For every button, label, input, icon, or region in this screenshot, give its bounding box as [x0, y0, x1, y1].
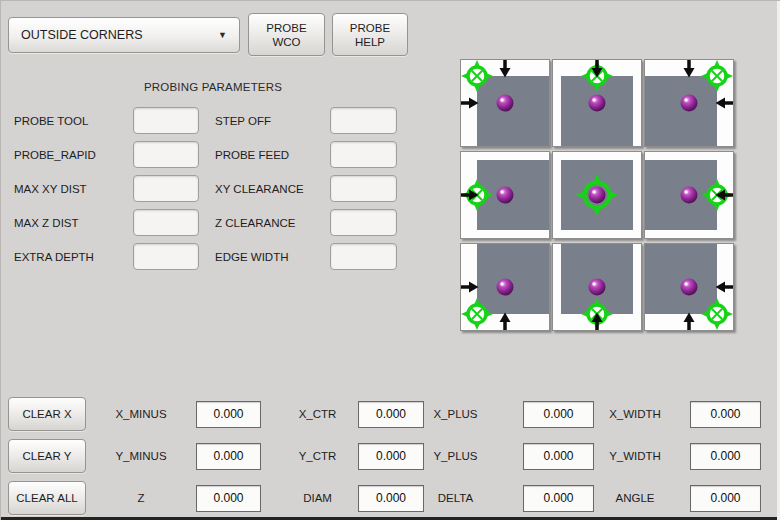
result-row: CLEAR ALLZ0.000DIAM0.000DELTA0.000ANGLE0…: [8, 481, 761, 515]
clear-x-button[interactable]: CLEAR X: [8, 397, 86, 431]
workpiece-square: [645, 244, 717, 314]
y-minus-label: Y_MINUS: [86, 450, 196, 462]
arrow-down-icon: [500, 60, 511, 78]
z-value-field: 0.000: [196, 485, 261, 512]
probe-help-button[interactable]: PROBE HELP: [332, 13, 408, 56]
y-plus-value-field: 0.000: [523, 443, 594, 470]
arrow-right-icon: [461, 98, 479, 109]
x-minus-value-field: 0.000: [196, 401, 261, 428]
probe-position-top-right-corner[interactable]: [644, 59, 734, 147]
x-plus-value-field: 0.000: [523, 401, 594, 428]
delta-label: DELTA: [424, 492, 523, 504]
probe-screen-window: OUTSIDE CORNERS ▼ PROBE WCO PROBE HELP P…: [0, 0, 780, 520]
arrow-up-icon: [684, 313, 695, 331]
arrow-left-icon: [716, 282, 734, 293]
probe-ball-icon: [589, 279, 606, 296]
y-width-label: Y_WIDTH: [594, 450, 690, 462]
x-plus-label: X_PLUS: [424, 408, 523, 420]
probe-tool-label: PROBE TOOL: [14, 107, 133, 134]
probe-help-label-line2: HELP: [355, 35, 385, 49]
xy-clearance-label: XY CLEARANCE: [199, 175, 330, 202]
edge-width-input[interactable]: [330, 243, 397, 270]
probe-ball-icon: [681, 187, 698, 204]
probe-help-label-line1: PROBE: [350, 21, 390, 35]
workpiece-square: [477, 76, 549, 146]
clear-all-button[interactable]: CLEAR ALL: [8, 481, 86, 515]
y-width-value-field: 0.000: [690, 443, 761, 470]
result-row: CLEAR YY_MINUS0.000Y_CTR0.000Y_PLUS0.000…: [8, 439, 761, 473]
y-ctr-value-field: 0.000: [358, 443, 424, 470]
max-xy-dist-label: MAX XY DIST: [14, 175, 133, 202]
diam-label: DIAM: [261, 492, 358, 504]
probing-parameters-form: PROBE TOOLSTEP OFFPROBE_RAPIDPROBE FEEDM…: [14, 107, 397, 270]
y-plus-label: Y_PLUS: [424, 450, 523, 462]
step-off-input[interactable]: [330, 107, 397, 134]
probe-position-bottom-right-corner[interactable]: [644, 243, 734, 331]
probe-position-bottom-edge[interactable]: [552, 243, 642, 331]
x-ctr-label: X_CTR: [261, 408, 358, 420]
probe-feed-label: PROBE FEED: [199, 141, 330, 168]
probe-wco-button[interactable]: PROBE WCO: [248, 13, 325, 56]
x-ctr-value-field: 0.000: [358, 401, 424, 428]
probe-mode-value: OUTSIDE CORNERS: [21, 28, 143, 42]
x-minus-label: X_MINUS: [86, 408, 196, 420]
probe-ball-icon: [497, 187, 514, 204]
probe-ball-icon: [589, 187, 606, 204]
probe-rapid-input[interactable]: [133, 141, 199, 168]
workpiece-square: [477, 244, 549, 314]
arrow-down-icon: [684, 60, 695, 78]
max-xy-dist-input[interactable]: [133, 175, 199, 202]
z-label: Z: [86, 492, 196, 504]
z-clearance-input[interactable]: [330, 209, 397, 236]
edge-width-label: EDGE WIDTH: [199, 243, 330, 270]
x-width-label: X_WIDTH: [594, 408, 690, 420]
probe-tool-input[interactable]: [133, 107, 199, 134]
probe-ball-icon: [589, 95, 606, 112]
z-clearance-label: Z CLEARANCE: [199, 209, 330, 236]
workpiece-square: [645, 76, 717, 146]
chevron-down-icon: ▼: [218, 30, 227, 40]
arrow-up-icon: [500, 313, 511, 331]
arrow-left-icon: [716, 98, 734, 109]
step-off-label: STEP OFF: [199, 107, 330, 134]
max-z-dist-input[interactable]: [133, 209, 199, 236]
probe-mode-dropdown[interactable]: OUTSIDE CORNERS ▼: [8, 17, 240, 53]
probe-position-left-edge[interactable]: [460, 151, 550, 239]
probe-ball-icon: [681, 279, 698, 296]
probe-feed-input[interactable]: [330, 141, 397, 168]
extra-depth-label: EXTRA DEPTH: [14, 243, 133, 270]
probe-position-grid: [460, 59, 734, 331]
probe-position-top-left-corner[interactable]: [460, 59, 550, 147]
extra-depth-input[interactable]: [133, 243, 199, 270]
angle-label: ANGLE: [594, 492, 690, 504]
probe-ball-icon: [497, 95, 514, 112]
diam-value-field: 0.000: [358, 485, 424, 512]
probing-parameters-title: PROBING PARAMETERS: [60, 81, 366, 93]
y-minus-value-field: 0.000: [196, 443, 261, 470]
probe-ball-icon: [497, 279, 514, 296]
max-z-dist-label: MAX Z DIST: [14, 209, 133, 236]
x-width-value-field: 0.000: [690, 401, 761, 428]
probe-results-panel: CLEAR XX_MINUS0.000X_CTR0.000X_PLUS0.000…: [8, 397, 761, 515]
probe-position-bottom-left-corner[interactable]: [460, 243, 550, 331]
xy-clearance-input[interactable]: [330, 175, 397, 202]
result-row: CLEAR XX_MINUS0.000X_CTR0.000X_PLUS0.000…: [8, 397, 761, 431]
probe-rapid-label: PROBE_RAPID: [14, 141, 133, 168]
probe-wco-label-line1: PROBE: [266, 21, 306, 35]
arrow-right-icon: [461, 282, 479, 293]
probe-ball-icon: [681, 95, 698, 112]
probe-wco-label-line2: WCO: [272, 35, 300, 49]
probe-position-center[interactable]: [552, 151, 642, 239]
probe-position-right-edge[interactable]: [644, 151, 734, 239]
y-ctr-label: Y_CTR: [261, 450, 358, 462]
clear-y-button[interactable]: CLEAR Y: [8, 439, 86, 473]
angle-value-field: 0.000: [690, 485, 761, 512]
probe-position-top-edge[interactable]: [552, 59, 642, 147]
delta-value-field: 0.000: [523, 485, 594, 512]
